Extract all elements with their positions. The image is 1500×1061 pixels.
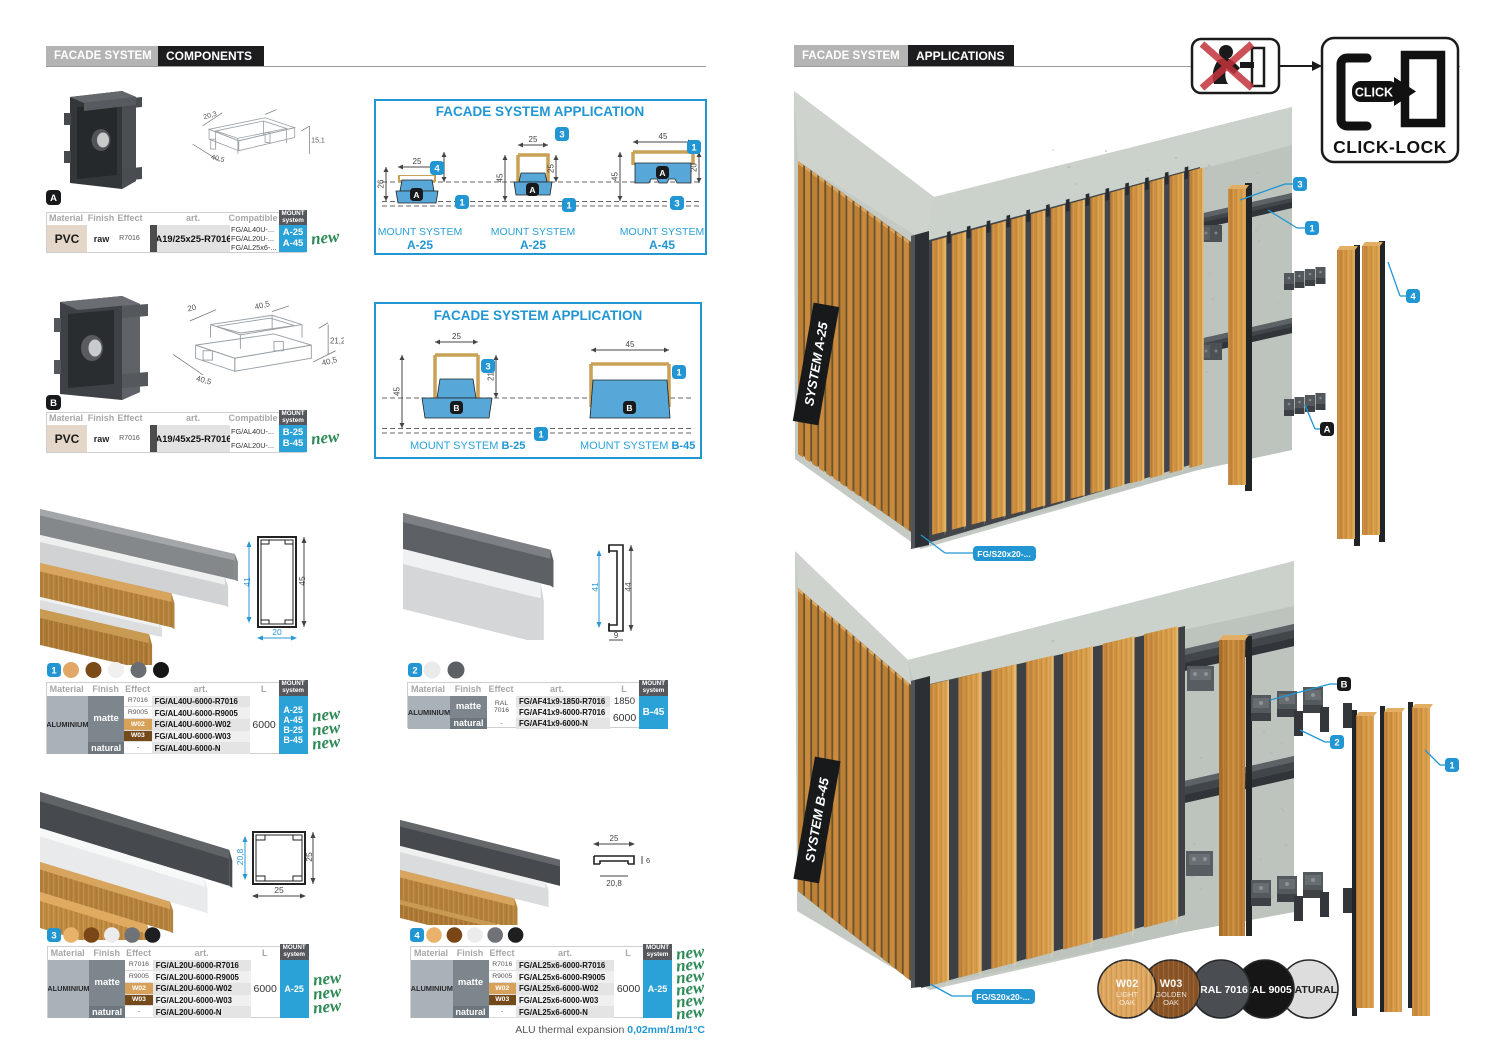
svg-text:A: A [1324, 424, 1331, 435]
svg-text:B: B [453, 403, 459, 413]
svg-text:B: B [626, 403, 632, 413]
svg-text:25: 25 [452, 332, 461, 341]
svg-text:A: A [50, 193, 57, 204]
svg-text:20: 20 [272, 627, 282, 637]
svg-text:1: 1 [538, 429, 544, 440]
svg-text:15,1: 15,1 [311, 137, 325, 144]
svg-text:1: 1 [51, 665, 57, 676]
svg-text:FACADE SYSTEM APPLICATION: FACADE SYSTEM APPLICATION [434, 308, 643, 323]
svg-text:3: 3 [1297, 179, 1302, 190]
svg-text:45: 45 [611, 172, 620, 181]
svg-text:FG/S20x20-...: FG/S20x20-... [976, 992, 1029, 1002]
svg-text:2: 2 [1334, 737, 1339, 748]
svg-text:3: 3 [485, 361, 490, 372]
svg-text:3: 3 [674, 198, 679, 209]
svg-text:25: 25 [529, 135, 538, 144]
svg-text:A: A [413, 190, 419, 200]
svg-text:40,5: 40,5 [254, 300, 272, 312]
svg-text:MOUNT SYSTEM: MOUNT SYSTEM [378, 226, 462, 238]
svg-text:25: 25 [610, 834, 619, 843]
svg-text:A: A [529, 185, 535, 195]
svg-text:MOUNT SYSTEM B-45: MOUNT SYSTEM B-45 [580, 440, 695, 452]
svg-text:3: 3 [51, 930, 56, 941]
svg-text:CLICK-LOCK: CLICK-LOCK [1333, 137, 1447, 157]
svg-text:1: 1 [459, 197, 465, 208]
svg-text:RAL 9005: RAL 9005 [1244, 984, 1292, 996]
svg-text:B: B [1341, 679, 1348, 690]
svg-text:FG/S20x20-...: FG/S20x20-... [977, 549, 1030, 559]
svg-text:1: 1 [566, 200, 572, 211]
svg-text:40,5: 40,5 [210, 154, 225, 164]
svg-text:1: 1 [1309, 223, 1315, 234]
svg-text:1: 1 [676, 367, 682, 378]
svg-text:A: A [659, 168, 665, 178]
svg-text:1: 1 [691, 142, 697, 153]
svg-text:45: 45 [626, 340, 635, 349]
svg-text:4: 4 [1410, 291, 1416, 302]
svg-text:2: 2 [412, 665, 417, 676]
svg-text:20: 20 [690, 163, 699, 172]
svg-text:CLICK: CLICK [1355, 86, 1393, 100]
svg-text:B: B [50, 398, 57, 409]
svg-text:25: 25 [274, 885, 284, 895]
svg-text:A-45: A-45 [649, 238, 675, 252]
svg-text:MOUNT SYSTEM: MOUNT SYSTEM [620, 226, 704, 238]
svg-text:40,5: 40,5 [195, 374, 213, 387]
svg-text:45: 45 [393, 387, 402, 396]
svg-text:1: 1 [1449, 760, 1455, 771]
svg-text:21,2: 21,2 [330, 336, 344, 345]
svg-text:4: 4 [414, 930, 420, 941]
svg-text:A-25: A-25 [520, 238, 546, 252]
svg-text:20,8: 20,8 [606, 879, 622, 888]
svg-text:9: 9 [614, 631, 619, 640]
svg-text:MOUNT SYSTEM: MOUNT SYSTEM [491, 226, 575, 238]
svg-text:25: 25 [547, 164, 556, 173]
svg-text:20,3: 20,3 [203, 111, 218, 122]
svg-text:MOUNT SYSTEM B-25: MOUNT SYSTEM B-25 [410, 440, 525, 452]
svg-text:6: 6 [646, 856, 650, 865]
svg-text:25: 25 [304, 852, 314, 862]
svg-text:RAL 7016: RAL 7016 [1200, 984, 1248, 996]
svg-text:41: 41 [242, 577, 252, 587]
svg-text:41: 41 [590, 582, 600, 592]
svg-text:45: 45 [496, 173, 505, 182]
svg-text:20: 20 [186, 302, 197, 313]
svg-text:44: 44 [623, 582, 633, 592]
svg-text:45: 45 [659, 132, 668, 141]
svg-text:25: 25 [413, 157, 422, 166]
svg-text:26: 26 [377, 179, 386, 188]
svg-text:A-25: A-25 [407, 238, 433, 252]
svg-text:45: 45 [297, 576, 307, 586]
svg-text:20,8: 20,8 [235, 848, 245, 865]
svg-text:4: 4 [434, 163, 440, 174]
svg-text:FACADE SYSTEM APPLICATION: FACADE SYSTEM APPLICATION [436, 104, 645, 119]
svg-text:3: 3 [559, 129, 564, 140]
